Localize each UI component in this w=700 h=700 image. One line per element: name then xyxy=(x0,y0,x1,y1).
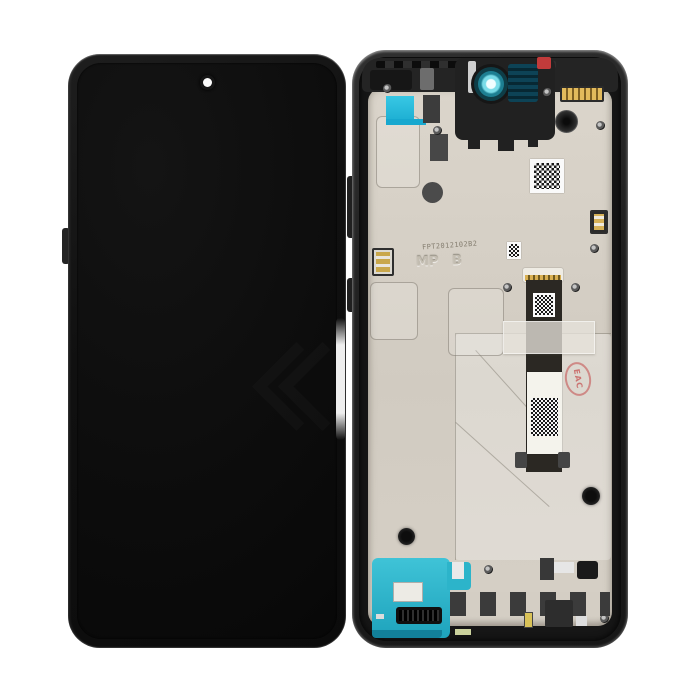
housing-tab xyxy=(528,138,538,147)
contact-connector-block xyxy=(590,210,608,234)
screw-hole xyxy=(484,565,493,574)
white-marker xyxy=(376,614,384,619)
qr-code-label xyxy=(530,159,564,193)
front-display-glass xyxy=(77,63,337,639)
speaker-module-tab xyxy=(447,562,471,590)
screw-hole xyxy=(596,121,605,130)
camera-lens-ring xyxy=(474,67,508,101)
clear-protective-tape xyxy=(503,321,595,354)
qr-code-label xyxy=(533,293,555,317)
gold-contacts xyxy=(376,252,390,272)
phone-front-assembly xyxy=(68,54,346,648)
bottom-component xyxy=(540,558,554,580)
bottom-speaker-block xyxy=(545,600,573,627)
speaker-label xyxy=(393,582,423,602)
qr-code xyxy=(531,398,558,436)
qr-code xyxy=(509,244,519,257)
top-band-component xyxy=(420,68,434,90)
ribbon-foot xyxy=(515,452,527,468)
qr-code xyxy=(534,163,560,189)
speaker-mesh-circle xyxy=(555,110,578,133)
contact-connector-block xyxy=(372,248,394,276)
foam-pad xyxy=(423,95,440,123)
molded-tray-outline xyxy=(376,116,420,188)
pcb-sliver xyxy=(455,629,471,635)
foam-dot xyxy=(398,528,415,545)
adhesive-dot xyxy=(422,182,443,203)
housing-tab xyxy=(498,138,514,151)
stamp-text: EAC xyxy=(572,368,584,390)
grille-texture xyxy=(399,610,439,621)
foam-pad xyxy=(430,134,448,161)
housing-tab xyxy=(468,138,480,149)
screw-hole xyxy=(503,283,512,292)
front-camera-housing xyxy=(455,58,555,140)
bottom-component xyxy=(577,561,598,579)
connector-pins xyxy=(562,88,602,100)
camera-lens xyxy=(478,71,504,97)
gold-contacts xyxy=(594,214,604,230)
frame-mold-marking: MP B xyxy=(416,253,462,270)
qr-code-label-small xyxy=(507,242,521,259)
screw-hole xyxy=(571,283,580,292)
cyan-adhesive-tape xyxy=(386,96,414,119)
product-photo: FPT2012102B2 MP B EAC xyxy=(0,0,700,700)
screw-hole xyxy=(433,126,442,135)
bottom-component xyxy=(554,562,574,573)
foam-dot xyxy=(582,487,600,505)
bottom-component xyxy=(576,616,587,626)
ribbed-coil-component xyxy=(508,64,538,102)
speaker-bottom-strip xyxy=(372,630,442,638)
phone-rear-frame: FPT2012102B2 MP B EAC xyxy=(352,50,628,648)
edge-reflection-highlight xyxy=(336,318,345,440)
serial-label xyxy=(527,372,562,454)
selfie-camera-punch-hole xyxy=(203,78,212,87)
gold-pin-connector xyxy=(560,86,604,102)
microphone-component xyxy=(524,612,533,628)
loudspeaker-module xyxy=(372,558,450,638)
ribbon-foot xyxy=(558,452,570,468)
module-notch xyxy=(452,562,464,579)
screw-hole xyxy=(543,88,552,97)
screw-hole xyxy=(590,244,599,253)
red-component xyxy=(537,57,551,69)
screw-hole xyxy=(383,84,392,93)
cyan-tape-strip xyxy=(386,119,426,125)
qr-code xyxy=(535,295,553,315)
molded-tray-outline xyxy=(370,282,418,340)
plate-seam xyxy=(455,334,456,560)
speaker-grille xyxy=(396,607,442,624)
molded-tray-outline xyxy=(448,288,504,356)
